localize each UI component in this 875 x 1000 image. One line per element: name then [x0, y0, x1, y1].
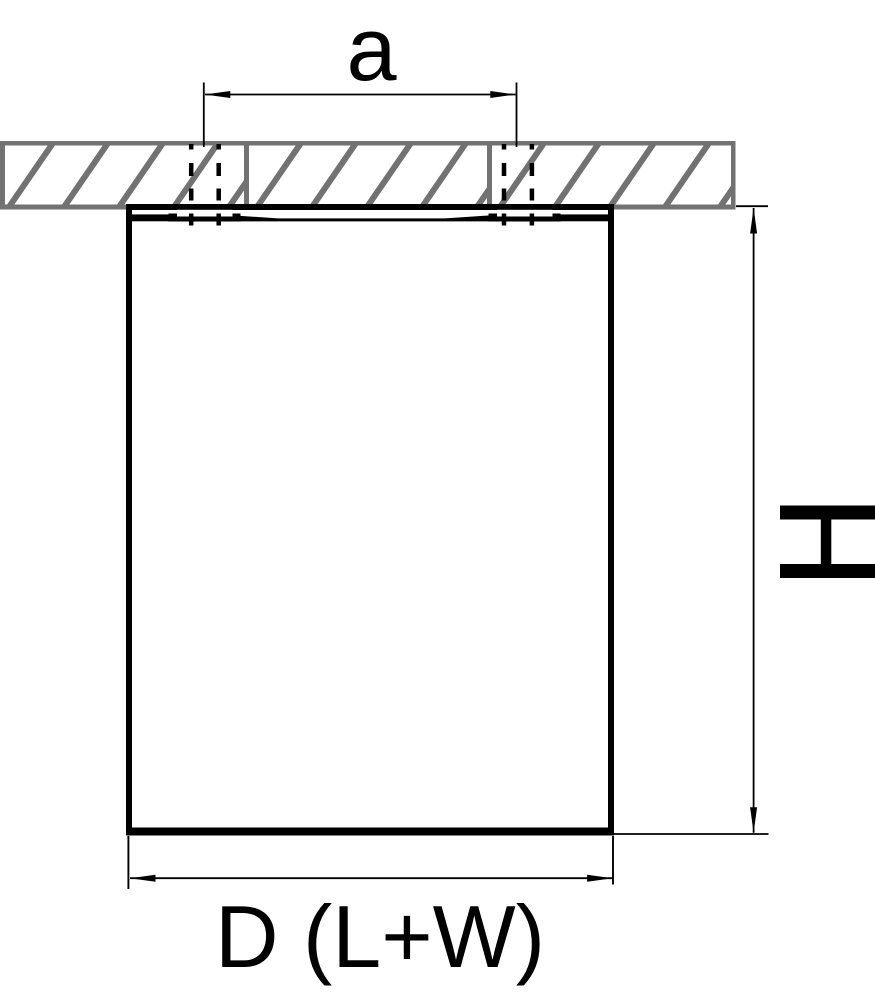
svg-text:D (L+W): D (L+W) — [215, 887, 545, 986]
svg-text:a: a — [346, 0, 397, 100]
